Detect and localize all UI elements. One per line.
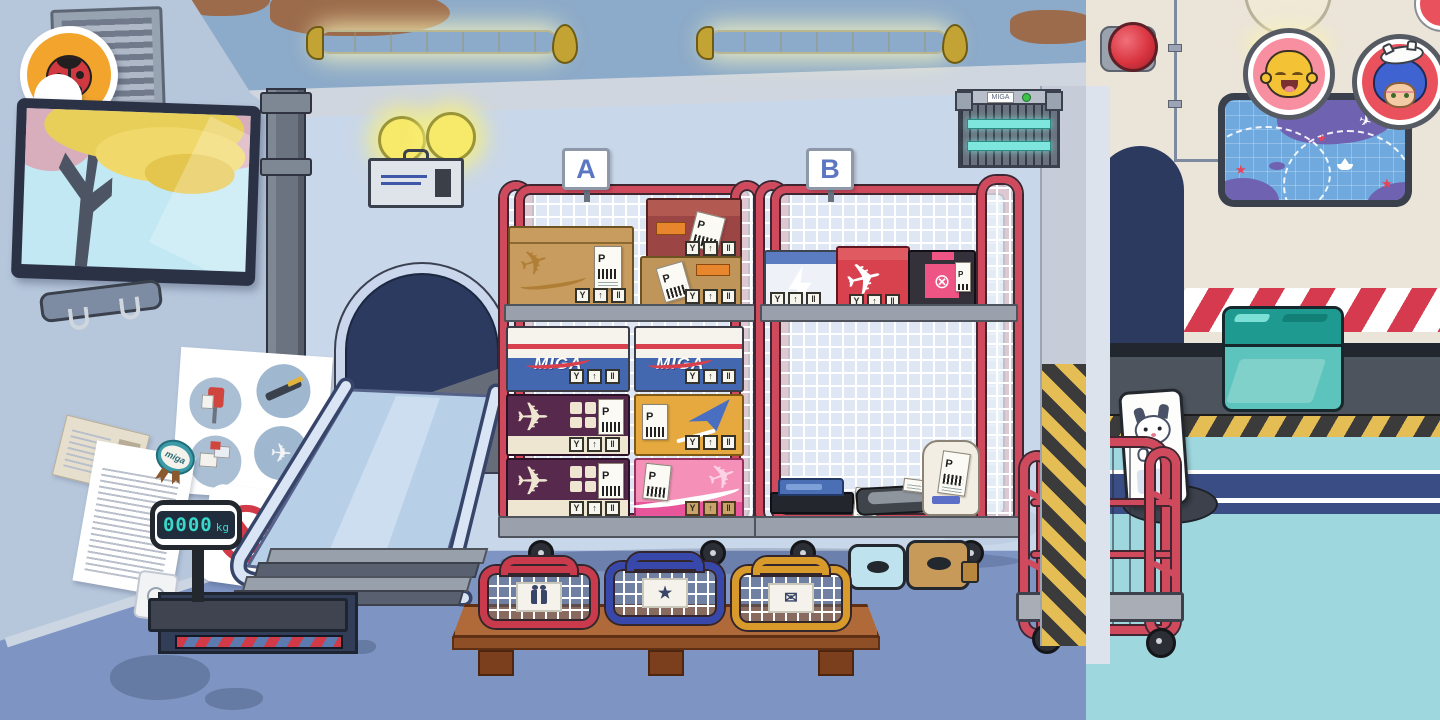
box-tan-small[interactable]: P Y ↑ ‖ [640,256,742,310]
scale-unit: kg [216,521,229,534]
corner-pillar-face [1086,86,1110,664]
box-purple-2[interactable]: ✈ P Y ↑ ‖ [506,458,630,520]
map-star-icon: ★ [1381,176,1393,192]
cart-brace [1152,561,1176,578]
cat-hat-ear [1381,42,1394,55]
pet-basket-yellow[interactable]: ✉ [732,566,850,630]
this-way-up-icon: ↑ [587,437,602,452]
pink-tape [932,252,954,260]
handling-icons: Y ↑ ‖ [569,501,620,516]
p-char: P [602,406,609,418]
fluorescent-light-icon [318,30,558,54]
label-lines [907,482,922,490]
p-char: P [944,458,953,471]
barcode [646,427,664,437]
pet-basket-blue[interactable]: ★ [606,562,724,624]
cart-brace [1152,491,1176,508]
cancel-icon: ⊗ [934,269,951,294]
pink-label: ⊗ [925,264,959,298]
barcode [602,422,620,432]
label-lines [598,280,618,286]
handling-icons: Y ↑ ‖ [685,369,736,384]
cart-a-sign: A [562,148,610,190]
scale-value: 0000 [163,514,213,536]
sign-post [584,188,590,202]
fragile-icon: Y [575,288,590,303]
box-miga-2[interactable]: MIGA Y ↑ ‖ [634,326,744,392]
sign-post [828,188,834,202]
this-way-up-icon: ↑ [703,289,718,304]
light-end-cap [552,24,578,64]
barcode [598,269,618,279]
cart-b-top-shelf [760,304,1018,322]
cart-b-bottom-shelf [754,516,1022,538]
shipping-label: P [642,404,668,440]
handling-icons: Y ↑ ‖ [569,369,620,384]
zapper-brand-label: MIGA [987,92,1015,103]
basket-handle [627,553,703,571]
blue-strap [932,496,960,504]
stack-icon: ‖ [721,289,736,304]
gift-icon [531,590,547,604]
box-handle [403,149,429,161]
teal-suitcase[interactable] [1222,306,1344,412]
box-purple-1[interactable]: ✈ P Y ↑ ‖ [506,394,630,456]
label-line [381,175,427,178]
shipping-label: P [598,463,624,499]
conduit-wire [1174,159,1222,162]
fragile-icon: Y [569,501,584,516]
box-dark-red[interactable]: P Y ↑ ‖ [646,198,742,262]
stack-icon: ‖ [605,501,620,516]
stack-icon: ‖ [721,241,736,256]
tape-hole [927,557,951,570]
this-way-up-icon: ↑ [587,501,602,516]
wire-clip [1168,100,1182,108]
mail-icon: ✉ [784,588,797,608]
this-way-up-icon: ↑ [593,288,608,303]
this-way-up-icon: ↑ [703,435,718,450]
handling-icons: Y ↑ ‖ [685,289,736,304]
cat-hat-ear [1406,40,1417,51]
cat-nose [1151,433,1156,437]
eye [1404,93,1409,98]
fragile-icon: Y [685,435,700,450]
p-char: P [648,470,657,483]
basket-label-star: ★ [642,578,688,608]
red-stripe [636,344,742,349]
pallet-edge [452,636,880,650]
p-char: P [696,219,706,232]
barcode [958,284,968,290]
closed-eye [1292,72,1303,78]
p-char: P [602,470,609,482]
case-base[interactable]: P [770,492,854,514]
plane-icon: ✈ [516,398,550,438]
basket-label-mail: ✉ [768,583,814,613]
fragile-icon: Y [685,369,700,384]
scale-pole [192,546,204,602]
ear [1260,72,1272,84]
basket-handle [753,557,829,575]
p-char: P [958,270,963,279]
basket-label-gift [516,582,562,612]
avatar-disc [1362,44,1438,120]
body-highlight [1226,359,1326,403]
pillar-hazard-stripes [1042,364,1088,646]
box-black[interactable]: ⊗ P [908,250,976,312]
p-char: P [598,253,605,265]
box-lid [648,200,740,216]
uv-tube [967,141,1051,151]
barcode [602,486,620,496]
scale-screen: 0000 kg [157,511,235,539]
emergency-light-box [368,158,464,208]
fragile-icon: Y [569,437,584,452]
pallet-leg [648,650,684,676]
white-sack[interactable]: P [922,440,980,516]
map-star-icon: ★ [1317,132,1327,145]
cart-a-top-shelf [504,304,758,322]
power-led [1022,93,1031,102]
stack-icon: ‖ [605,369,620,384]
shipping-label: P [598,399,624,435]
orange-sticker [696,264,730,276]
fragile-icon: Y [569,369,584,384]
zapper-bracket [1045,91,1063,111]
box-yellow-paperplane[interactable]: P Y ↑ ‖ [634,394,744,456]
stack-icon: ‖ [721,369,736,384]
handling-icons: Y ↑ ‖ [685,435,736,450]
handling-icons: Y ↑ ‖ [685,241,736,256]
orange-sticker [656,222,686,235]
barcode [646,486,665,498]
this-way-up-icon: ↑ [703,501,718,516]
light-end-cap [306,26,324,60]
cat-eye [1158,426,1162,430]
fluorescent-light-icon [708,30,948,54]
window-glass [21,108,250,272]
platform-hazard-stripe [175,635,343,649]
box-miga-1[interactable]: MIGA Y ↑ ‖ [506,326,630,392]
closed-eye [1275,72,1286,78]
this-way-up-icon: ↑ [703,369,718,384]
alarm-light-icon [1108,22,1158,72]
red-stripe [508,344,628,349]
laughing-mouth [1281,80,1298,92]
cart-b-sign: B [806,148,854,190]
cart-a-letter: A [576,154,596,185]
basket-handle [501,557,577,575]
tape-tail [961,561,979,583]
glasses-line [1386,91,1414,93]
pipe-collar [260,158,312,176]
map-star-icon: ★ [1235,162,1247,178]
stack-icon: ‖ [721,435,736,450]
p-char: P [646,411,653,423]
fragile-icon: Y [685,289,700,304]
avatar-button-1[interactable] [1243,28,1335,120]
pallet-leg [478,650,514,676]
pipe-collar [260,92,312,114]
shipping-label: P [594,246,622,289]
ear [1306,72,1318,84]
box-tan-airline[interactable]: ✈ P Y ↑ ‖ [508,226,634,310]
wire-clip [1168,44,1182,52]
laughing-kid-avatar [1265,50,1313,98]
handling-icons: Y ↑ ‖ [575,288,626,303]
avatar-button-2[interactable] [1352,34,1440,130]
stack-icon: ‖ [611,288,626,303]
pallet-leg [818,650,854,676]
cart-b-right-door [978,176,1022,532]
emergency-lamp-icon [426,112,476,162]
stack-icon: ‖ [605,437,620,452]
label-line [381,182,421,185]
zapper-bracket [955,91,973,111]
fragile-icon: Y [685,241,700,256]
pet-basket-red[interactable] [480,566,598,628]
window-grid [570,466,596,492]
kid-face [1384,82,1416,108]
handling-icons: Y ↑ ‖ [569,437,620,452]
fragile-icon: Y [685,501,700,516]
this-way-up-icon: ↑ [703,241,718,256]
light-end-cap [942,24,968,64]
scale-platform-tray[interactable] [148,598,348,632]
ladybug-spot [76,71,84,79]
case-slot [786,484,822,490]
airport-baggage-room-scene: ✈ miga [0,0,1440,720]
plane-icon: ✈ [516,462,550,502]
star-icon: ★ [658,583,672,603]
cat-eye [1144,427,1148,431]
light-end-cap [696,26,714,60]
cage-cart-wheel [1146,628,1176,658]
cart-b-letter: B [820,154,840,185]
handling-icons: Y ↑ ‖ [685,501,736,516]
box-pink-airline[interactable]: ✈ P Y ↑ ‖ [634,458,744,520]
window-grid [570,402,596,428]
cart-a-bottom-shelf [498,516,764,538]
corner-pillar [1040,86,1088,646]
eye [1391,93,1396,98]
scale-display[interactable]: 0000 kg [150,500,242,550]
tape-roll-tan[interactable] [906,540,970,590]
blue-lid [766,252,836,264]
shipping-label: P [955,262,971,292]
shipping-label: P [642,463,672,502]
p-char: P [661,272,671,286]
tape-hole [867,561,889,573]
lid-highlight [1233,314,1271,322]
shipping-label: P [937,450,971,496]
this-way-up-icon: ↑ [587,369,602,384]
tape-roll-blue[interactable] [848,544,906,590]
insect-zapper: MIGA [958,92,1060,168]
conduit-wire [1174,0,1177,162]
box-lightning[interactable]: Y ↑ ‖ [764,250,838,312]
stack-icon: ‖ [721,501,736,516]
test-button [435,169,451,197]
avatar-disc [1253,38,1325,110]
lid-shade [1281,314,1329,322]
uv-tube [967,119,1051,129]
